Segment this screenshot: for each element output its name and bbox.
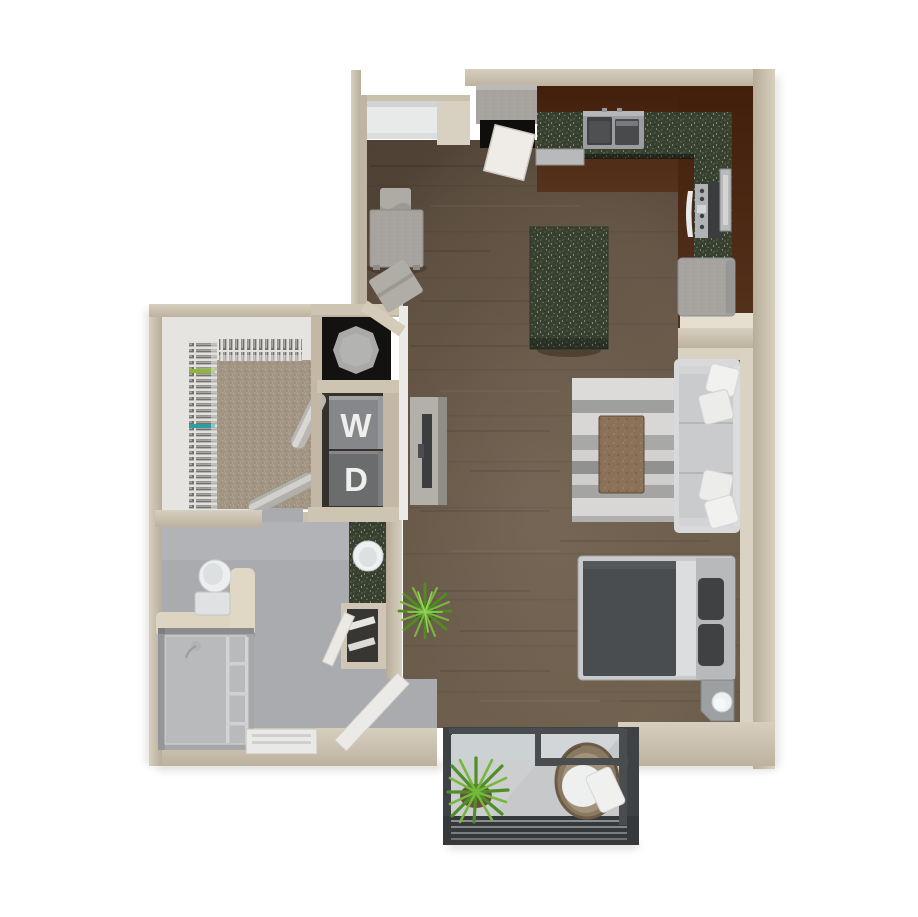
svg-text:D: D <box>344 461 368 498</box>
svg-text:W: W <box>340 407 372 444</box>
